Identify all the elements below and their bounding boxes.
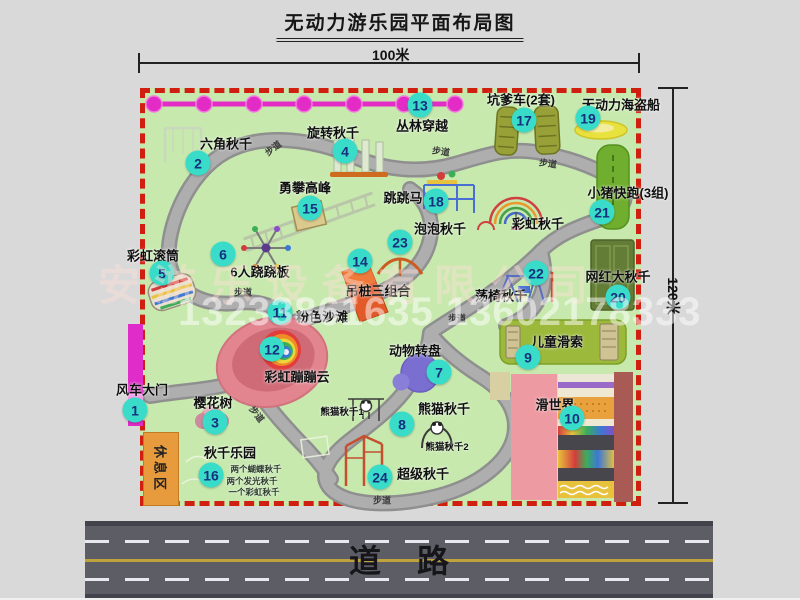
- map-item-label-5: 彩虹滚筒: [127, 246, 179, 265]
- map-item-label-6: 6人跷跷板: [230, 262, 289, 281]
- height-dim-top-tick: [658, 87, 688, 89]
- walkway-label: 步道: [448, 312, 466, 325]
- rest-area-block: 休息区: [143, 432, 179, 506]
- map-item-label-1: 风车大门: [116, 380, 168, 399]
- map-item-label-17: 坑爹车(2套): [487, 90, 555, 109]
- road-label: 道路: [313, 536, 485, 582]
- map-item-label-24: 超级秋千: [397, 464, 449, 483]
- map-item-label-9: 儿童滑索: [531, 332, 583, 351]
- map-item-marker-21: 21: [590, 200, 615, 225]
- map-item-marker-11: 11: [268, 300, 293, 325]
- map-sub-label: 熊猫秋千1: [320, 404, 363, 418]
- map-sub-label: 一个彩虹秋千: [228, 486, 279, 498]
- map-item-marker-5: 5: [150, 261, 175, 286]
- map-item-marker-24: 24: [368, 465, 393, 490]
- map-item-marker-23: 23: [388, 230, 413, 255]
- map-sub-label: 两个蝴蝶秋千: [230, 463, 281, 475]
- map-item-label-15: 勇攀高峰: [279, 178, 331, 197]
- map-item-marker-14: 14: [348, 249, 373, 274]
- map-item-label-23: 泡泡秋千: [414, 219, 466, 238]
- map-item-marker-22: 22: [524, 261, 549, 286]
- map-sub-label: 彩虹秋千: [512, 214, 564, 233]
- map-item-marker-19: 19: [576, 106, 601, 131]
- map-item-marker-8: 8: [390, 412, 415, 437]
- map-item-label-12: 彩虹蹦蹦云: [264, 367, 329, 386]
- height-dimension-label: 120米: [663, 277, 683, 314]
- walkway-label: 步道: [431, 143, 451, 158]
- map-item-marker-6: 6: [211, 242, 236, 267]
- map-item-marker-20: 20: [606, 285, 631, 310]
- map-item-label-7: 动物转盘: [389, 341, 441, 360]
- height-dim-bottom-tick: [658, 502, 688, 504]
- map-item-label-4: 旋转秋千: [307, 123, 359, 142]
- width-dim-left-tick: [138, 53, 140, 73]
- map-item-label-14: 吊桩三组合: [345, 281, 410, 300]
- map-item-marker-13: 13: [408, 93, 433, 118]
- map-item-marker-18: 18: [424, 189, 449, 214]
- map-item-label-8: 熊猫秋千: [418, 399, 470, 418]
- walkway-label: 步道: [234, 286, 252, 299]
- park-plan-screenshot: 无动力游乐园平面布局图 100米 120米: [0, 0, 800, 600]
- map-item-label-18: 跳跳马: [383, 188, 422, 207]
- page-title: 无动力游乐园平面布局图: [276, 8, 523, 42]
- map-item-marker-7: 7: [427, 360, 452, 385]
- map-item-marker-16: 16: [199, 463, 224, 488]
- map-item-marker-17: 17: [512, 108, 537, 133]
- road: 道路: [85, 521, 713, 598]
- map-item-marker-9: 9: [516, 345, 541, 370]
- map-item-marker-2: 2: [186, 151, 211, 176]
- map-item-marker-4: 4: [333, 139, 358, 164]
- walkway-label: 步道: [538, 155, 558, 170]
- map-item-marker-10: 10: [560, 406, 585, 431]
- map-item-label-22: 荡椅秋千: [475, 286, 527, 305]
- map-item-label-2: 六角秋千: [200, 134, 252, 153]
- rest-area-label: 休息区: [152, 445, 171, 493]
- map-item-label-20: 网红大秋千: [585, 267, 650, 286]
- width-dimension-label: 100米: [372, 45, 409, 65]
- map-item-marker-3: 3: [203, 410, 228, 435]
- walkway-label: 步道: [373, 494, 391, 507]
- map-item-marker-1: 1: [123, 398, 148, 423]
- map-sub-label: 熊猫秋千2: [425, 439, 468, 453]
- map-item-label-16: 秋千乐园: [204, 443, 256, 462]
- map-item-marker-15: 15: [298, 196, 323, 221]
- map-item-label-13: 丛林穿越: [396, 116, 448, 135]
- map-item-marker-12: 12: [260, 337, 285, 362]
- width-dim-right-tick: [638, 53, 640, 73]
- map-item-label-11: 粉色沙滩: [296, 307, 348, 326]
